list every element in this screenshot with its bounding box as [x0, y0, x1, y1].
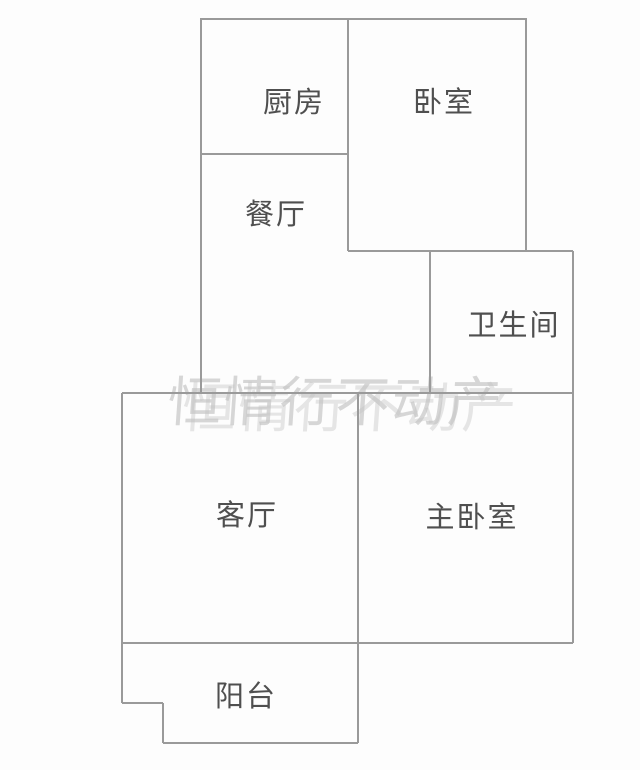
room-label-bathroom: 卫生间 — [467, 302, 560, 344]
room-label-bedroom: 卧室 — [413, 79, 475, 121]
room-label-kitchen: 厨房 — [263, 79, 325, 121]
room-label-balcony: 阳台 — [215, 673, 277, 715]
room-label-master-bedroom: 主卧室 — [425, 494, 518, 536]
room-label-living-room: 客厅 — [216, 492, 278, 534]
room-label-dining-room: 餐厅 — [245, 191, 307, 233]
floorplan-canvas: 恒情行不动产 厨房 卧室 餐厅 卫生间 客厅 — [0, 0, 640, 770]
